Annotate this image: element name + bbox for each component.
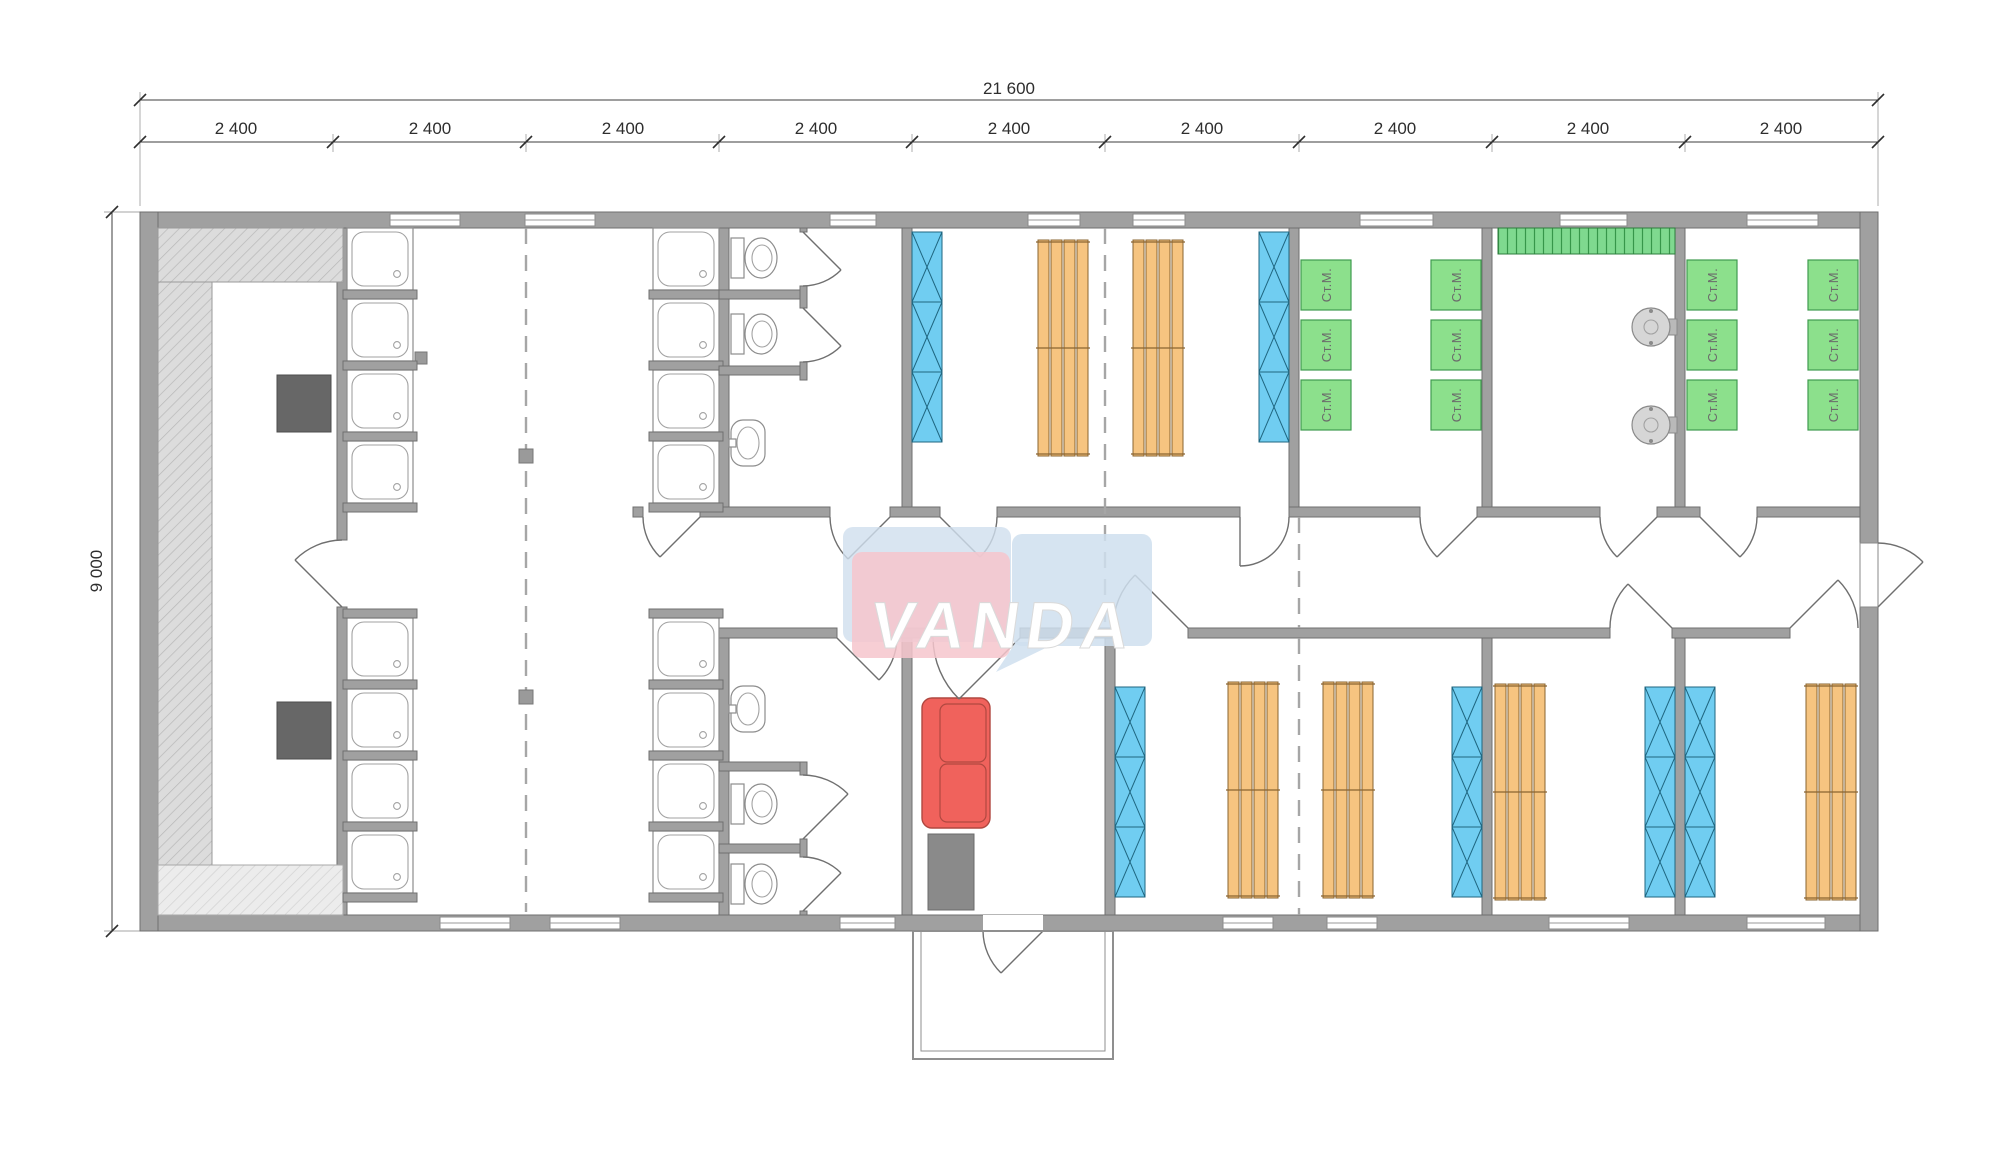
drying-counter (1498, 228, 1675, 254)
door (1790, 580, 1858, 628)
door (643, 517, 700, 557)
washing-machine: Ст.М. (1301, 260, 1351, 310)
window (525, 214, 595, 226)
wall-dryer (1632, 406, 1677, 444)
locker-cabinet (1259, 232, 1289, 442)
window (1747, 917, 1825, 929)
table (928, 834, 974, 910)
bench-bottom (158, 865, 343, 915)
logo-text: VANDA (866, 589, 1141, 663)
shower-room (343, 228, 723, 902)
svg-text:Ст.М.: Ст.М. (1449, 328, 1464, 362)
dim-segment: 2 400 (1567, 119, 1610, 138)
door (803, 857, 841, 911)
washing-machine: Ст.М. (1687, 260, 1737, 310)
shower-stall (653, 441, 719, 503)
door (1420, 517, 1477, 557)
washing-machine: Ст.М. (1431, 380, 1481, 430)
window (1360, 214, 1433, 226)
locker-cabinet (1115, 687, 1145, 897)
svg-text:Ст.М.: Ст.М. (1705, 328, 1720, 362)
door (1240, 517, 1289, 566)
dim-segment: 2 400 (795, 119, 838, 138)
shower-stall (347, 760, 413, 822)
dim-segment: 2 400 (1374, 119, 1417, 138)
dimension-top: 21 600 2 400 2 400 2 400 2 400 2 400 2 4… (134, 79, 1884, 206)
window (550, 917, 620, 929)
window (1327, 917, 1377, 929)
washing-machine: Ст.М. (1687, 320, 1737, 370)
svg-text:Ст.М.: Ст.М. (1705, 268, 1720, 302)
svg-text:Ст.М.: Ст.М. (1449, 388, 1464, 422)
window (1133, 214, 1185, 226)
bench-top (158, 228, 343, 282)
stove (277, 375, 331, 432)
bench-left (158, 282, 212, 865)
shower-stall (653, 228, 719, 290)
svg-text:Ст.М.: Ст.М. (1319, 388, 1334, 422)
window (1560, 214, 1627, 226)
bunk-beds (1131, 240, 1185, 456)
dim-segment: 2 400 (602, 119, 645, 138)
washing-machine: Ст.М. (1808, 260, 1858, 310)
locker-cabinet (1452, 687, 1482, 897)
door (1610, 584, 1672, 628)
shower-stall (653, 618, 719, 680)
vanda-logo: VANDA (843, 527, 1152, 672)
window (390, 214, 460, 226)
shower-stall (653, 689, 719, 751)
toilet-block-lower (719, 638, 897, 915)
entrance-porch (913, 931, 1113, 1059)
dim-segment: 2 400 (988, 119, 1031, 138)
dim-total-width: 21 600 (983, 79, 1035, 98)
stove (277, 702, 331, 759)
washing-machine: Ст.М. (1431, 260, 1481, 310)
toilet (731, 784, 777, 824)
sink (729, 420, 765, 466)
washing-machine: Ст.М. (1687, 380, 1737, 430)
exit-door (1878, 543, 1923, 607)
door (1700, 517, 1757, 557)
shower-stall (653, 299, 719, 361)
window (840, 917, 895, 929)
window (1747, 214, 1818, 226)
shower-stall (347, 228, 413, 290)
door (803, 232, 841, 286)
dorm-room-3 (1113, 575, 1482, 898)
locker-cabinet (1685, 687, 1715, 897)
svg-text:Ст.М.: Ст.М. (1826, 388, 1841, 422)
window (440, 917, 510, 929)
washing-machine: Ст.М. (1301, 320, 1351, 370)
shower-stall (347, 370, 413, 432)
wall-dryer (1632, 308, 1677, 346)
shower-stall (653, 370, 719, 432)
entrance-door (983, 931, 1043, 973)
shower-stall (347, 299, 413, 361)
dim-segment: 2 400 (1760, 119, 1803, 138)
shower-stall (347, 831, 413, 893)
window (1223, 917, 1273, 929)
toilet (731, 314, 777, 354)
bunk-beds (1804, 684, 1858, 900)
toilet (731, 864, 777, 904)
sink (729, 686, 765, 732)
washing-machine: Ст.М. (1431, 320, 1481, 370)
door (803, 308, 841, 362)
window (830, 214, 876, 226)
sofa (922, 698, 990, 828)
dim-building-height: 9 000 (87, 550, 106, 593)
svg-text:Ст.М.: Ст.М. (1826, 268, 1841, 302)
dim-segment: 2 400 (215, 119, 258, 138)
dim-segment: 2 400 (1181, 119, 1224, 138)
shower-stall (653, 831, 719, 893)
washing-machine: Ст.М. (1808, 380, 1858, 430)
column-post (519, 690, 533, 704)
svg-text:Ст.М.: Ст.М. (1319, 328, 1334, 362)
door (1600, 517, 1657, 557)
shower-stall (653, 760, 719, 822)
column-post (519, 449, 533, 463)
locker-cabinet (1645, 687, 1675, 897)
shower-stall (347, 618, 413, 680)
dim-segment: 2 400 (409, 119, 452, 138)
svg-text:Ст.М.: Ст.М. (1826, 328, 1841, 362)
washing-machine: Ст.М. (1301, 380, 1351, 430)
door (803, 775, 848, 839)
svg-text:Ст.М.: Ст.М. (1705, 388, 1720, 422)
window (1028, 214, 1080, 226)
sauna-room (158, 228, 343, 915)
window (1549, 917, 1629, 929)
washing-machine: Ст.М. (1808, 320, 1858, 370)
toilet (731, 238, 777, 278)
bunk-beds (1321, 682, 1375, 898)
bunk-beds (1226, 682, 1280, 898)
bunk-beds (1036, 240, 1090, 456)
corridor (1860, 543, 1923, 607)
floor-plan-canvas: 21 600 2 400 2 400 2 400 2 400 2 400 2 4… (0, 0, 2000, 1173)
shower-stall (347, 689, 413, 751)
shower-stall (347, 441, 413, 503)
locker-cabinet (912, 232, 942, 442)
svg-text:Ст.М.: Ст.М. (1319, 268, 1334, 302)
bunk-beds (1493, 684, 1547, 900)
door (295, 540, 342, 607)
svg-text:Ст.М.: Ст.М. (1449, 268, 1464, 302)
